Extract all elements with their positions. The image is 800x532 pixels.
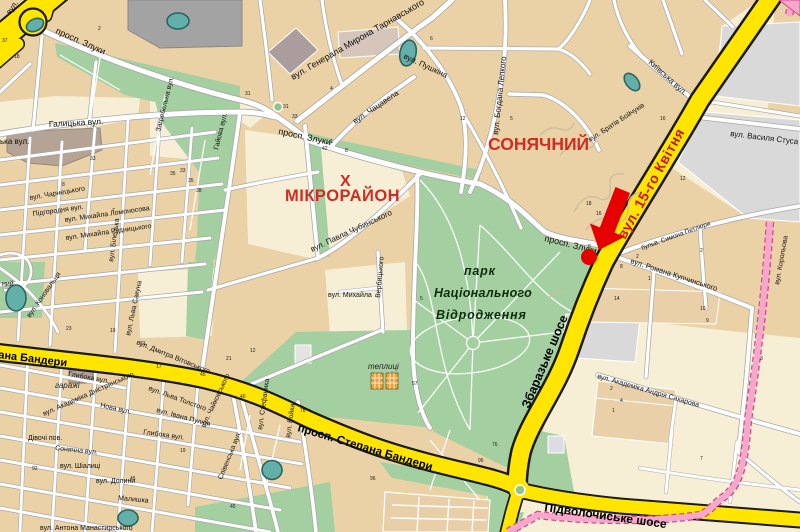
svg-text:19: 19 [110, 328, 116, 334]
svg-text:35: 35 [170, 171, 176, 177]
svg-text:45: 45 [130, 476, 136, 482]
svg-text:5: 5 [420, 296, 423, 302]
svg-text:96: 96 [370, 476, 376, 482]
svg-text:8: 8 [345, 148, 348, 154]
svg-text:33: 33 [180, 168, 186, 174]
svg-text:8: 8 [62, 182, 65, 188]
svg-text:42: 42 [322, 146, 328, 152]
svg-text:9: 9 [706, 318, 709, 324]
svg-text:гаражі: гаражі [55, 381, 80, 390]
svg-text:вул. Шіалиці: вул. Шіалиці [60, 462, 101, 470]
svg-text:2: 2 [636, 254, 639, 260]
svg-text:76: 76 [492, 442, 498, 448]
svg-text:1: 1 [648, 276, 651, 282]
svg-text:21: 21 [140, 341, 146, 347]
svg-text:2: 2 [700, 248, 703, 254]
svg-text:2: 2 [98, 26, 101, 32]
svg-text:МІКРОРАЙОН: МІКРОРАЙОН [285, 186, 400, 205]
svg-text:33: 33 [292, 114, 298, 120]
svg-text:Дівочі пов.: Дівочі пов. [28, 434, 62, 442]
svg-text:парк: парк [464, 264, 496, 278]
svg-text:1: 1 [612, 408, 615, 414]
svg-text:31: 31 [245, 91, 251, 97]
svg-text:16: 16 [596, 211, 602, 217]
svg-text:19: 19 [180, 448, 186, 454]
svg-text:23: 23 [66, 326, 72, 332]
svg-text:2: 2 [610, 386, 613, 392]
svg-text:18: 18 [14, 54, 20, 60]
svg-text:СОНЯЧНИЙ: СОНЯЧНИЙ [488, 133, 589, 154]
svg-text:4: 4 [330, 86, 333, 92]
svg-text:7: 7 [112, 208, 115, 214]
svg-text:Відродження: Відродження [436, 308, 527, 322]
svg-text:12: 12 [460, 116, 466, 122]
svg-text:78: 78 [300, 408, 306, 414]
svg-text:ька вул.: ька вул. [0, 137, 29, 146]
svg-text:вул. Михайла: вул. Михайла [328, 291, 372, 299]
svg-text:92: 92 [32, 466, 38, 472]
svg-text:теплиці: теплиці [368, 362, 399, 371]
svg-text:7: 7 [700, 456, 703, 462]
svg-text:38: 38 [196, 188, 202, 194]
svg-text:33: 33 [90, 156, 96, 162]
svg-text:Національного: Національного [434, 286, 532, 300]
svg-text:37: 37 [2, 38, 8, 44]
svg-text:вул. Антона Манастирського: вул. Антона Манастирського [40, 525, 133, 532]
svg-text:5: 5 [510, 116, 513, 122]
svg-text:8: 8 [620, 264, 623, 270]
svg-text:ний: ний [2, 280, 14, 288]
svg-text:4: 4 [620, 398, 623, 404]
svg-text:12: 12 [250, 348, 256, 354]
svg-text:31: 31 [283, 104, 289, 110]
svg-text:35: 35 [188, 178, 194, 184]
svg-text:45: 45 [200, 372, 206, 378]
svg-text:18: 18 [586, 201, 592, 207]
svg-text:10: 10 [700, 306, 706, 312]
svg-text:45: 45 [230, 504, 236, 510]
svg-text:1: 1 [330, 139, 333, 145]
svg-text:14: 14 [614, 296, 620, 302]
svg-text:40: 40 [240, 394, 246, 400]
svg-text:21: 21 [226, 356, 232, 362]
svg-text:96: 96 [478, 458, 484, 464]
svg-text:12: 12 [680, 176, 686, 182]
svg-text:6: 6 [430, 36, 433, 42]
svg-text:16: 16 [660, 116, 666, 122]
svg-text:57: 57 [412, 381, 418, 387]
svg-text:3: 3 [760, 356, 763, 362]
svg-text:17: 17 [156, 364, 162, 370]
